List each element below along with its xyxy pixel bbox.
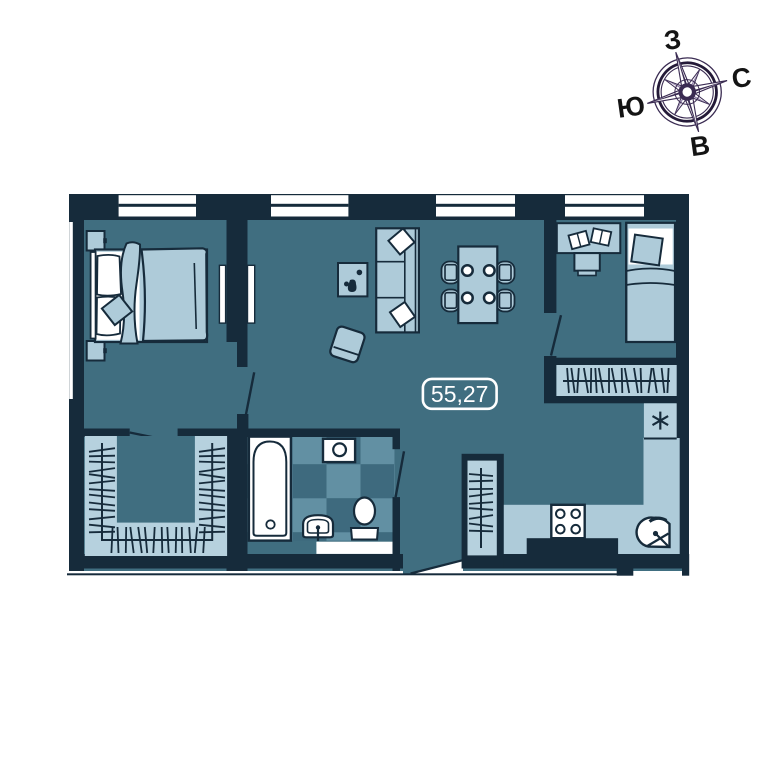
svg-text:Ю: Ю	[615, 90, 647, 124]
svg-text:С: С	[730, 62, 753, 94]
svg-text:55,27: 55,27	[431, 381, 489, 407]
svg-text:В: В	[688, 130, 711, 162]
